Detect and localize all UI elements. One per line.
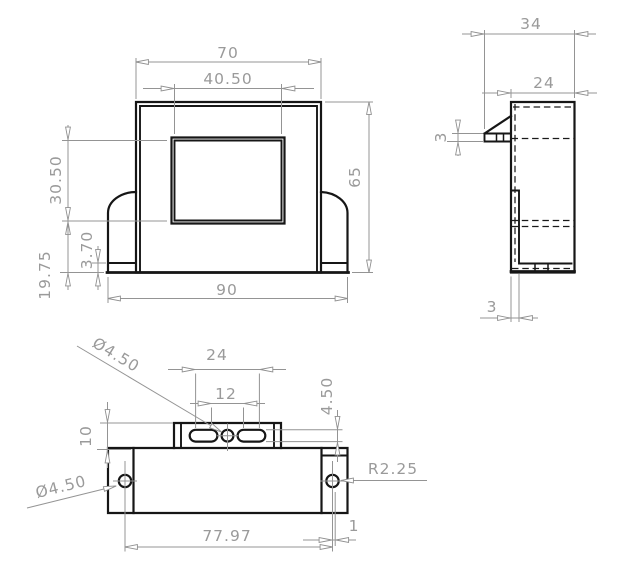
ext-3-flange <box>447 134 483 142</box>
dim-text-body-depth: 24 <box>533 74 555 92</box>
ext-10 <box>97 423 173 450</box>
center-hole-crosshair <box>217 424 238 452</box>
dim-text-window-height: 30.50 <box>47 155 65 204</box>
dim-text-base-lip: 3.70 <box>78 231 96 270</box>
ext-34-24 <box>485 30 575 129</box>
base-ticks <box>535 264 548 271</box>
window-opening-inner <box>175 141 282 221</box>
right-ear <box>321 192 348 273</box>
ext-40-50 <box>175 84 282 134</box>
front-view: 70 40.50 65 30.50 3.70 19.75 90 <box>36 44 373 303</box>
dim-text-window-width: 40.50 <box>203 70 252 88</box>
dim-text-base-width: 90 <box>216 281 238 299</box>
side-body <box>511 102 575 273</box>
dim-text-wall-thickness: 3 <box>487 298 498 316</box>
side-view-hidden-lines <box>512 104 575 269</box>
dim-text-slot-span-outer: 24 <box>206 346 228 364</box>
dim-text-hole-spacing: 77.97 <box>202 527 251 545</box>
dim-text-side-hole-dia: Ø4.50 <box>34 472 89 502</box>
bottom-body <box>108 448 348 513</box>
slot-right <box>238 430 266 442</box>
flange-plate <box>485 134 512 142</box>
front-body <box>136 102 321 273</box>
ext-4-50 <box>266 430 343 442</box>
dim-text-overall-width: 70 <box>217 44 239 62</box>
right-hole-crosshair <box>321 461 345 552</box>
dim-text-lower-section: 19.75 <box>36 250 54 299</box>
bottom-view: 24 12 4.50 10 Ø4.50 Ø4.50 R2.25 77.97 1 <box>27 334 427 552</box>
cad-drawing-canvas: 70 40.50 65 30.50 3.70 19.75 90 <box>0 0 639 576</box>
left-ear <box>108 192 136 273</box>
dim-text-slot-span-inner: 12 <box>215 385 237 403</box>
flange-ticks <box>497 134 504 142</box>
side-view-outline <box>485 102 575 273</box>
dim-text-overall-height: 65 <box>346 166 364 188</box>
side-inner-step <box>511 191 572 264</box>
slot-left <box>190 430 218 442</box>
bottom-ear-lines <box>134 448 322 513</box>
window-opening-outer <box>172 138 285 224</box>
dim-text-slot-radius: R2.25 <box>368 460 418 478</box>
flange-slant <box>485 116 512 134</box>
side-view: 34 24 3 3 <box>432 15 597 322</box>
front-view-outline <box>107 102 349 273</box>
dim-text-tab-depth: 10 <box>77 425 95 447</box>
ext-30-50 <box>62 141 167 222</box>
dim-text-hole-edge-offset: 1 <box>349 517 360 535</box>
dim-text-slot-width: 4.50 <box>318 377 336 416</box>
leader-center-hole <box>77 346 222 432</box>
dim-text-flange-thickness: 3 <box>432 132 450 143</box>
ext-3-wall <box>511 274 519 322</box>
engineering-drawing: 70 40.50 65 30.50 3.70 19.75 90 <box>0 0 639 576</box>
front-body-inner-line <box>140 106 317 272</box>
dim-text-overall-depth: 34 <box>520 15 542 33</box>
front-view-dimensions: 70 40.50 65 30.50 3.70 19.75 90 <box>36 44 373 303</box>
